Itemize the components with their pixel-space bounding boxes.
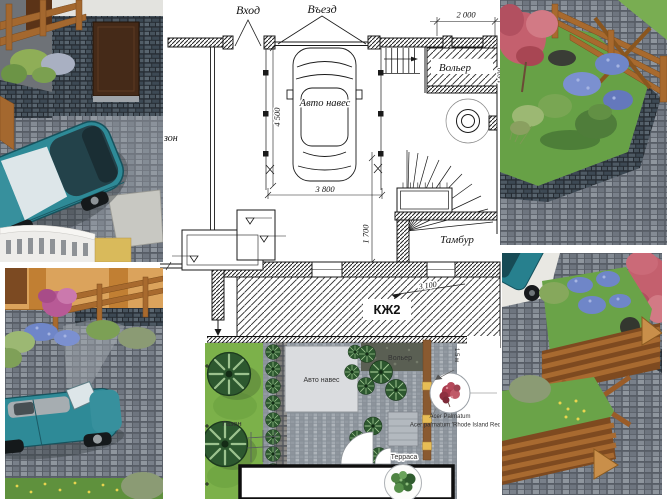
- drive-in-label: Въезд: [307, 2, 336, 16]
- car-plan-symbol: [287, 48, 362, 181]
- design-presentation-sheet: Вход Въезд 2 000 Вольер Авто навес 4 500…: [0, 0, 667, 499]
- carport-label: Авто навес: [299, 98, 351, 109]
- wooden-door: [93, 22, 139, 102]
- dim-4500: 4 500: [272, 107, 282, 127]
- floor-plan: Вход Въезд 2 000 Вольер Авто навес 4 500…: [160, 0, 505, 348]
- site-aviary-label: Вольер: [388, 355, 412, 362]
- dim-2000: 2 000: [456, 10, 476, 20]
- plant-annotation-line1: Acer Palmatum: [429, 414, 470, 420]
- aviary-label: Вольер: [439, 62, 472, 74]
- vestibule-room: [397, 220, 409, 266]
- render-raised-garden: [500, 0, 667, 245]
- entrance-label: Вход: [236, 3, 260, 17]
- render-terraced-beds: [502, 253, 662, 495]
- grey-bush: [509, 375, 551, 403]
- yellow-pillar: [95, 238, 131, 262]
- fence-height-label: 1.5 м: [453, 348, 459, 362]
- site-plan: Газон Авто навес Вольер Терраса 1.5 м Ac…: [205, 336, 500, 499]
- plant-annotation-line2: Acer palmatum 'Rhode Island Red': [410, 423, 500, 429]
- dim-1700: 1 700: [361, 224, 371, 244]
- building-mark-label: КЖ2: [374, 302, 401, 317]
- lawn-label-cropped: зон: [163, 133, 178, 144]
- white-balustrade: [0, 225, 95, 262]
- site-carport-label: Авто навес: [304, 377, 340, 384]
- terrace-steps: [388, 412, 418, 446]
- vestibule-label: Тамбур: [440, 234, 474, 246]
- render-courtyard-car: [0, 0, 163, 262]
- terrace-bush: [385, 465, 422, 499]
- site-lawn-label: Газон: [222, 419, 241, 428]
- render-driveway-car: [5, 268, 163, 499]
- dim-3800: 3 800: [314, 184, 335, 194]
- site-terrace-label: Терраса: [391, 454, 418, 461]
